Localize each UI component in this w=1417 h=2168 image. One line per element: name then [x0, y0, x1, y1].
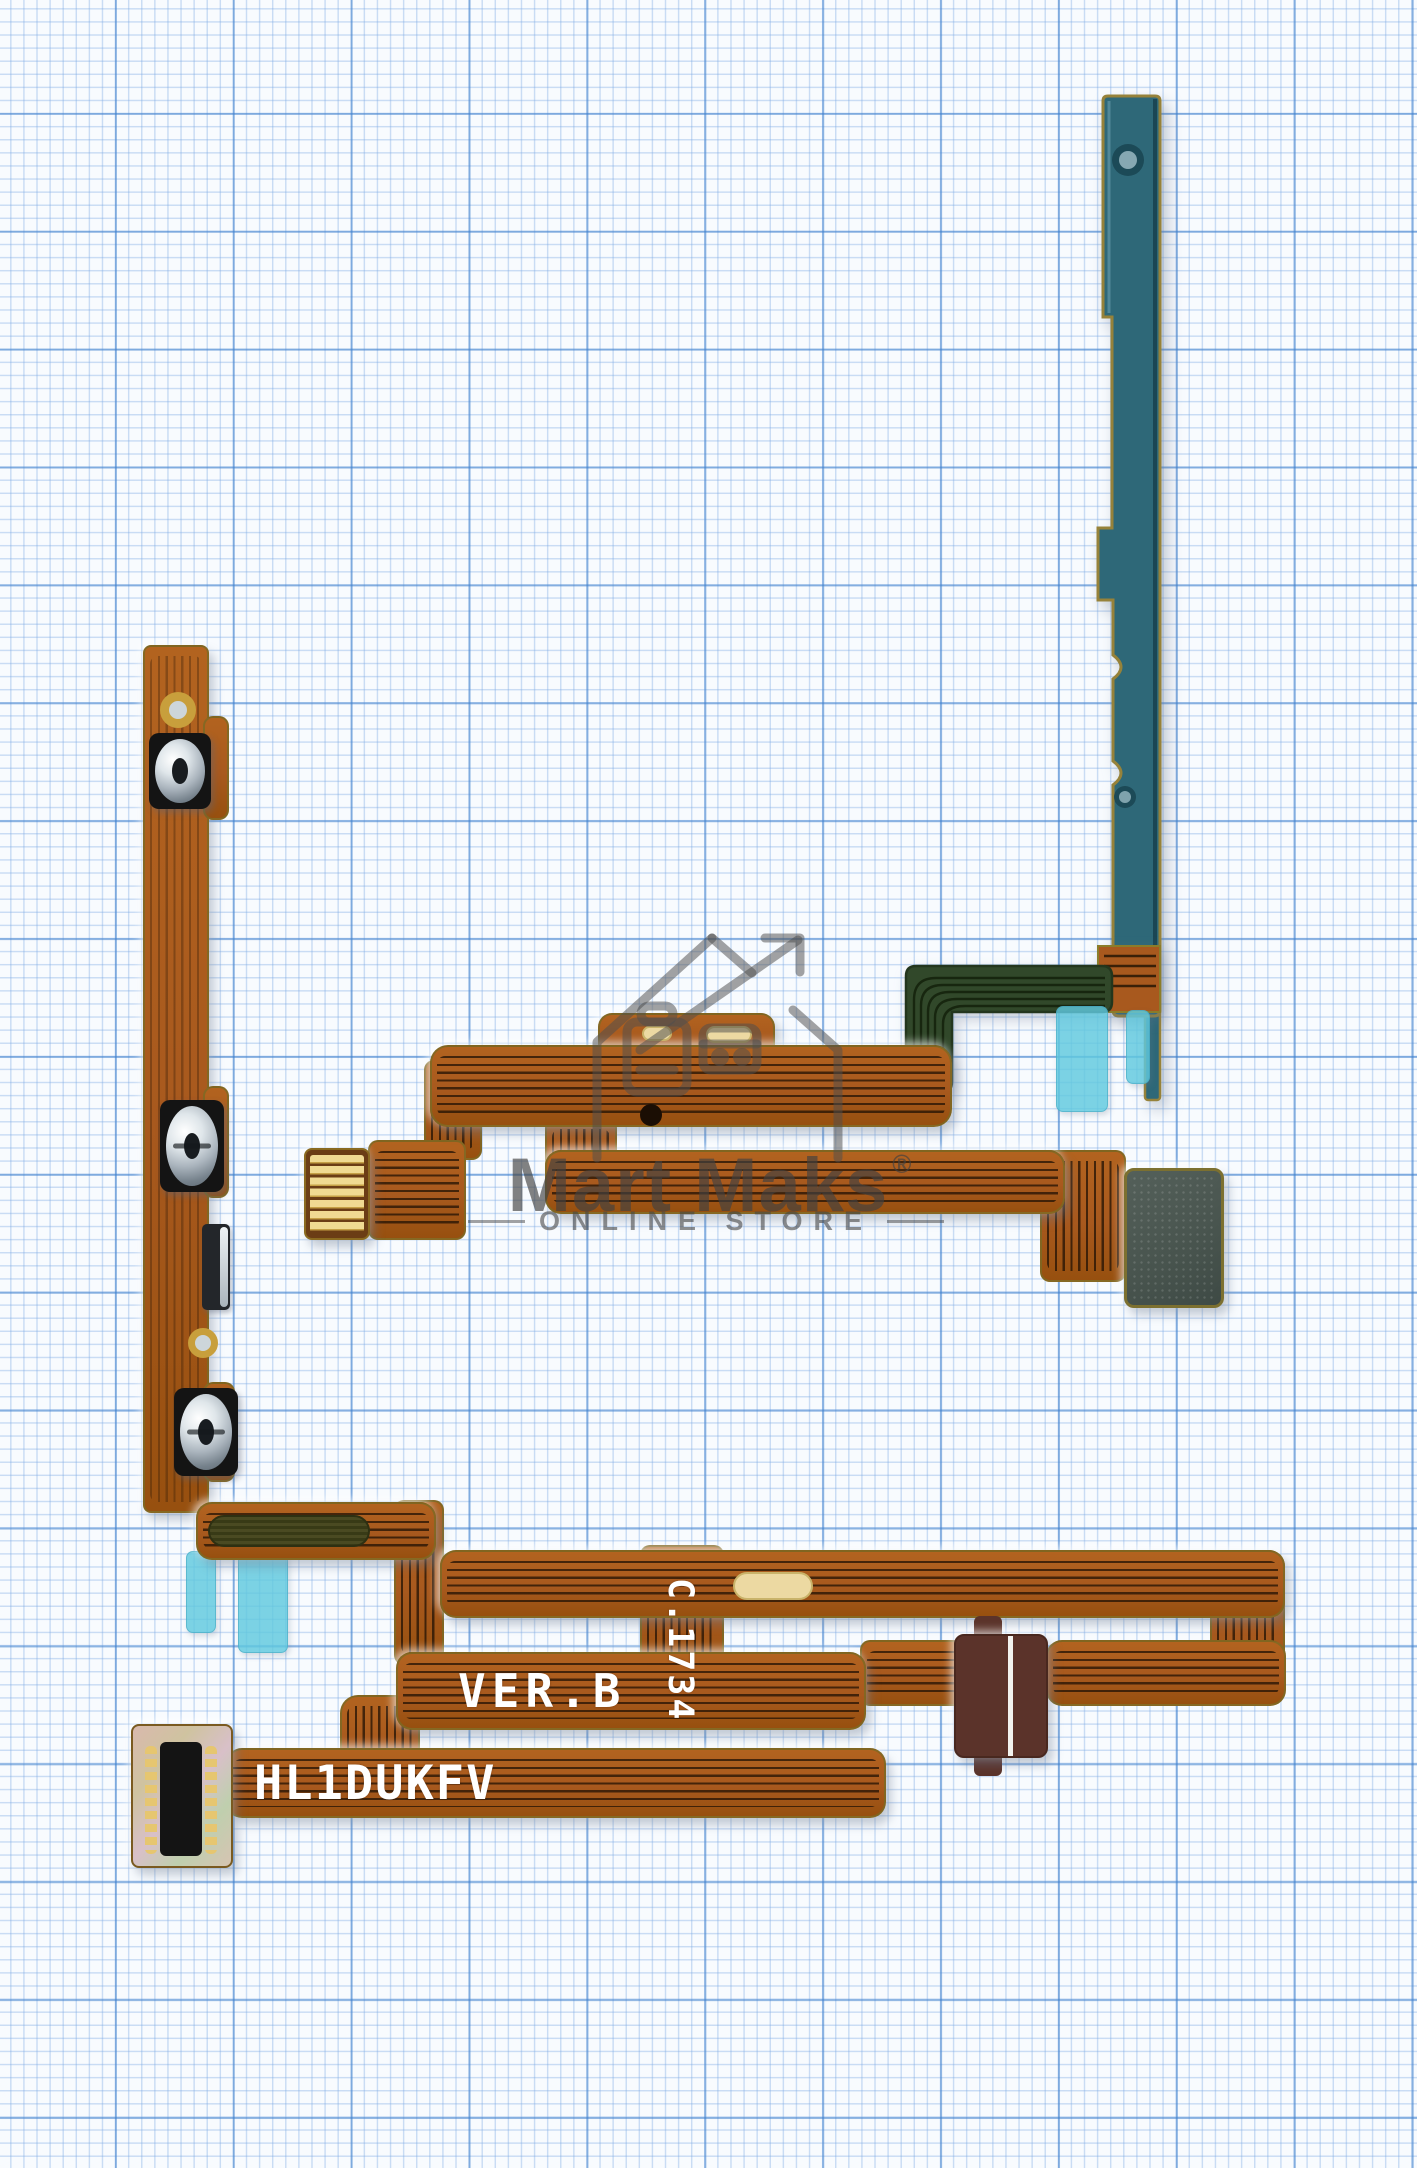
connector-stripe: [1008, 1636, 1013, 1756]
house-arrow-icon: [555, 910, 865, 1180]
dome-slit: [173, 1144, 210, 1149]
gold-pad-long: [733, 1572, 813, 1600]
graph-paper-background: VER.B C.1734 HL1DUKFV Mart Maks® ONLINE …: [0, 0, 1417, 2168]
gold-finger-connector: [304, 1148, 370, 1240]
registered-mark: ®: [892, 1149, 912, 1179]
component-metal-edge: [220, 1227, 228, 1307]
side-component: [202, 1224, 230, 1310]
dome-button-bottom: [174, 1388, 238, 1476]
fabric-contact-pad: [1124, 1168, 1224, 1308]
adhesive-tape: [1056, 1006, 1108, 1112]
dome-button-top: [149, 733, 211, 809]
model-code-marking: HL1DUKFV: [254, 1756, 496, 1811]
dome-center: [172, 758, 188, 784]
end-connector-maroon: [954, 1634, 1048, 1758]
board-connector-pad: [131, 1724, 233, 1868]
subtitle-rule-right: [887, 1220, 944, 1223]
subtitle-text: ONLINE STORE: [539, 1206, 873, 1237]
gold-fingers: [310, 1155, 364, 1233]
adhesive-tape: [238, 1551, 288, 1653]
pin-column-right: [205, 1746, 217, 1854]
version-marking: VER.B: [458, 1664, 626, 1718]
pin-column-left: [145, 1746, 157, 1854]
watermark-subtitle: ONLINE STORE: [468, 1206, 944, 1237]
flex-fanout: [368, 1140, 466, 1240]
dome-slit: [187, 1430, 224, 1435]
adhesive-tape: [1126, 1010, 1150, 1084]
date-code-marking: C.1734: [660, 1578, 700, 1722]
screw-hole-ring: [188, 1328, 218, 1358]
stiffener-bar: [208, 1515, 370, 1547]
dome-button-middle: [160, 1100, 224, 1192]
metal-dome: [155, 739, 205, 803]
connector-housing: [160, 1742, 202, 1856]
metal-dome: [166, 1106, 218, 1186]
adhesive-tape: [186, 1551, 216, 1633]
bracket-body: [1098, 96, 1160, 1016]
flex-return-band: [1046, 1640, 1286, 1706]
subtitle-rule-left: [468, 1220, 525, 1223]
metal-dome: [180, 1394, 232, 1470]
screw-hole-ring: [160, 692, 196, 728]
flex-long-band: [440, 1550, 1285, 1618]
